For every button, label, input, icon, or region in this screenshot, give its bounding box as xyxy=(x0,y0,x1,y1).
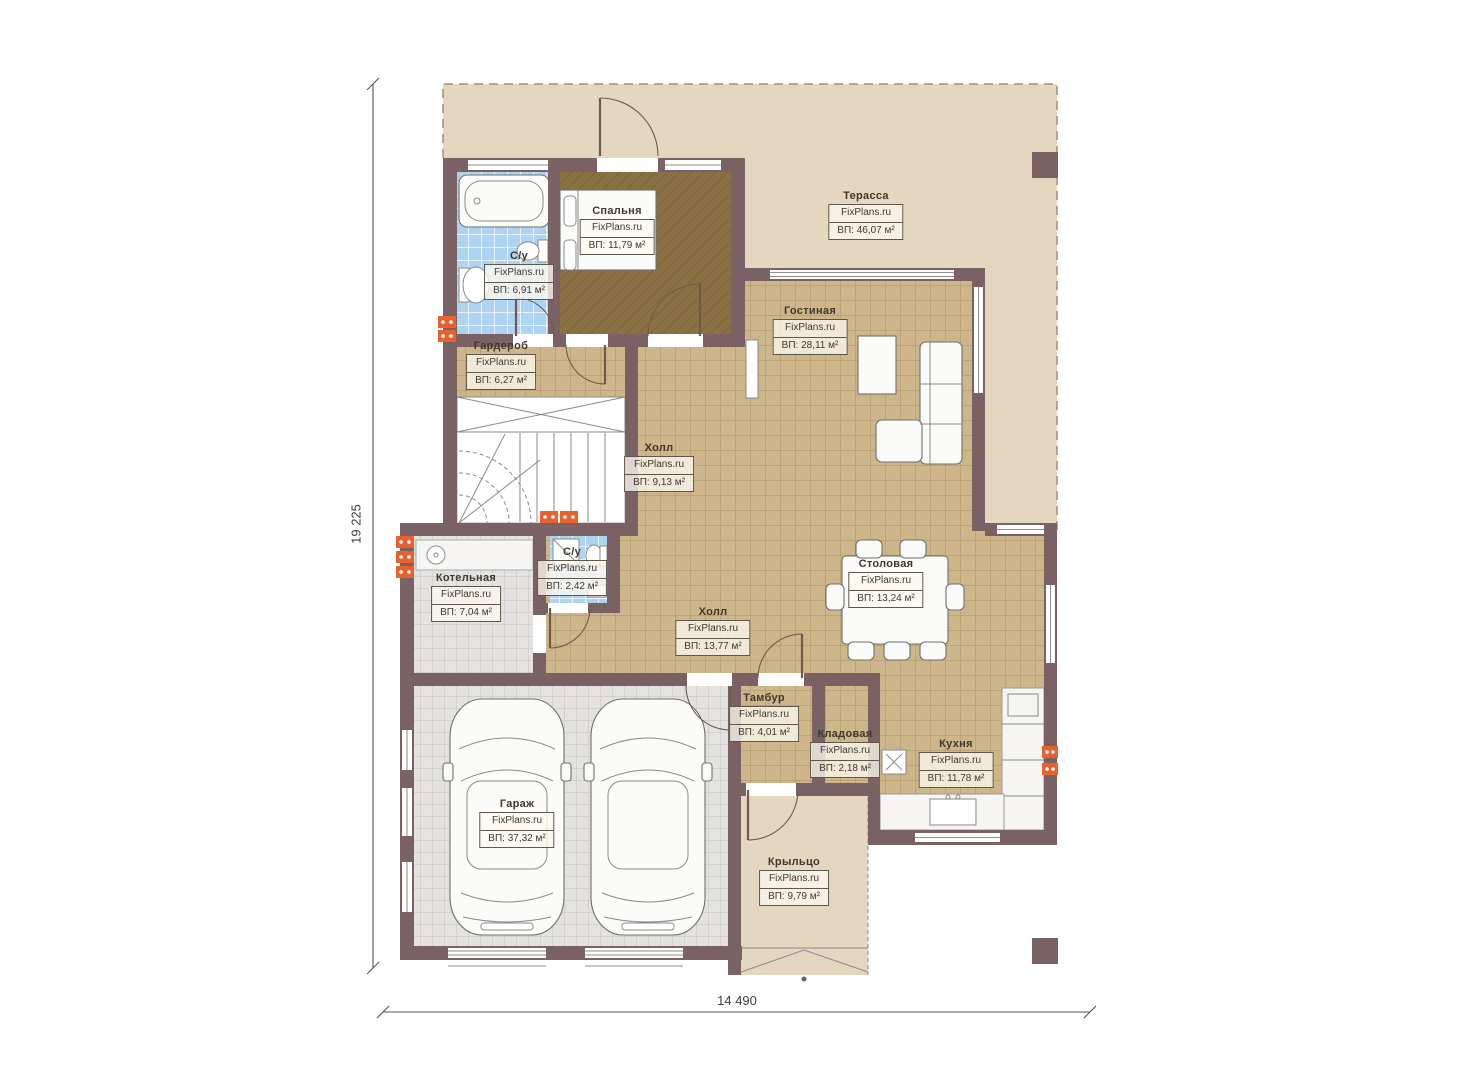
room-info-box: FixPlans.ru ВП: 2,42 м² xyxy=(537,560,607,596)
room-label-hall-2: Холл FixPlans.ru ВП: 13,77 м² xyxy=(675,606,750,656)
dimension-height-label: 19 225 xyxy=(349,504,364,544)
watermark: FixPlans.ru xyxy=(432,587,500,605)
watermark: FixPlans.ru xyxy=(480,813,553,831)
room-info-box: FixPlans.ru ВП: 9,79 м² xyxy=(759,870,829,906)
room-name: Холл xyxy=(675,606,750,618)
room-area: ВП: 13,24 м² xyxy=(849,591,922,608)
room-info-box: FixPlans.ru ВП: 2,18 м² xyxy=(810,742,880,778)
room-area: ВП: 11,78 м² xyxy=(920,771,993,788)
room-name: Гараж xyxy=(479,798,554,810)
room-name: Столовая xyxy=(848,558,923,570)
watermark: FixPlans.ru xyxy=(730,707,798,725)
room-info-box: FixPlans.ru ВП: 13,24 м² xyxy=(848,572,923,608)
stove-icon xyxy=(1042,746,1058,758)
floor-plan-page: Спальня FixPlans.ru ВП: 11,79 м² С/у Fix… xyxy=(0,0,1474,1080)
room-info-box: FixPlans.ru ВП: 9,13 м² xyxy=(624,456,694,492)
room-label-porch: Крыльцо FixPlans.ru ВП: 9,79 м² xyxy=(759,856,829,906)
radiator-icon xyxy=(396,551,414,563)
radiator-icon xyxy=(560,511,578,523)
watermark: FixPlans.ru xyxy=(625,457,693,475)
room-name: Терасса xyxy=(828,190,903,202)
room-area: ВП: 28,11 м² xyxy=(774,338,847,355)
room-info-box: FixPlans.ru ВП: 46,07 м² xyxy=(828,204,903,240)
room-name: Гостиная xyxy=(773,305,848,317)
boiler-unit xyxy=(416,540,533,570)
bathtub xyxy=(459,175,549,227)
room-info-box: FixPlans.ru ВП: 11,79 м² xyxy=(580,219,655,255)
room-area: ВП: 6,27 м² xyxy=(467,373,535,390)
room-label-pantry: Кладовая FixPlans.ru ВП: 2,18 м² xyxy=(810,728,880,778)
room-name: Тамбур xyxy=(729,692,799,704)
wardrobe-unit xyxy=(457,397,625,432)
room-name: С/у xyxy=(537,546,607,558)
room-label-hall-1: Холл FixPlans.ru ВП: 9,13 м² xyxy=(624,442,694,492)
watermark: FixPlans.ru xyxy=(920,753,993,771)
watermark: FixPlans.ru xyxy=(760,871,828,889)
room-area: ВП: 7,04 м² xyxy=(432,605,500,622)
room-area: ВП: 4,01 м² xyxy=(730,725,798,742)
room-label-terrace: Терасса FixPlans.ru ВП: 46,07 м² xyxy=(828,190,903,240)
room-name: Котельная xyxy=(431,572,501,584)
room-area: ВП: 2,42 м² xyxy=(538,579,606,596)
room-label-bedroom: Спальня FixPlans.ru ВП: 11,79 м² xyxy=(580,205,655,255)
watermark: FixPlans.ru xyxy=(849,573,922,591)
room-info-box: FixPlans.ru ВП: 28,11 м² xyxy=(773,319,848,355)
watermark: FixPlans.ru xyxy=(811,743,879,761)
room-name: Спальня xyxy=(580,205,655,217)
room-name: Холл xyxy=(624,442,694,454)
room-area: ВП: 9,79 м² xyxy=(760,889,828,906)
room-label-wardrobe: Гардероб FixPlans.ru ВП: 6,27 м² xyxy=(466,340,536,390)
room-area: ВП: 13,77 м² xyxy=(676,639,749,656)
room-info-box: FixPlans.ru ВП: 4,01 м² xyxy=(729,706,799,742)
room-label-boiler-room: Котельная FixPlans.ru ВП: 7,04 м² xyxy=(431,572,501,622)
radiator-icon xyxy=(396,536,414,548)
radiator-icon xyxy=(438,330,456,342)
room-label-bathroom-2: С/у FixPlans.ru ВП: 2,42 м² xyxy=(537,546,607,596)
radiator-icon xyxy=(540,511,558,523)
room-area: ВП: 9,13 м² xyxy=(625,475,693,492)
room-label-living-room: Гостиная FixPlans.ru ВП: 28,11 м² xyxy=(773,305,848,355)
watermark: FixPlans.ru xyxy=(538,561,606,579)
tv-console xyxy=(746,340,758,398)
room-name: Крыльцо xyxy=(759,856,829,868)
radiator-icon xyxy=(438,316,456,328)
room-info-box: FixPlans.ru ВП: 6,27 м² xyxy=(466,354,536,390)
floor-plan-drawing xyxy=(0,0,1474,1080)
room-label-garage: Гараж FixPlans.ru ВП: 37,32 м² xyxy=(479,798,554,848)
watermark: FixPlans.ru xyxy=(581,220,654,238)
watermark: FixPlans.ru xyxy=(485,265,553,283)
room-label-dining-room: Столовая FixPlans.ru ВП: 13,24 м² xyxy=(848,558,923,608)
room-area: ВП: 37,32 м² xyxy=(480,831,553,848)
dimension-width-label: 14 490 xyxy=(717,993,757,1008)
room-name: Кухня xyxy=(919,738,994,750)
watermark: FixPlans.ru xyxy=(829,205,902,223)
room-name: Кладовая xyxy=(810,728,880,740)
room-label-kitchen: Кухня FixPlans.ru ВП: 11,78 м² xyxy=(919,738,994,788)
watermark: FixPlans.ru xyxy=(774,320,847,338)
room-info-box: FixPlans.ru ВП: 37,32 м² xyxy=(479,812,554,848)
watermark: FixPlans.ru xyxy=(676,621,749,639)
room-label-bathroom-1: С/у FixPlans.ru ВП: 6,91 м² xyxy=(484,250,554,300)
room-area: ВП: 11,79 м² xyxy=(581,238,654,255)
room-area: ВП: 46,07 м² xyxy=(829,223,902,240)
room-name: Гардероб xyxy=(466,340,536,352)
room-info-box: FixPlans.ru ВП: 6,91 м² xyxy=(484,264,554,300)
room-area: ВП: 6,91 м² xyxy=(485,283,553,300)
coffee-table xyxy=(858,336,896,394)
room-info-box: FixPlans.ru ВП: 13,77 м² xyxy=(675,620,750,656)
radiator-icon xyxy=(396,566,414,578)
room-area: ВП: 2,18 м² xyxy=(811,761,879,778)
stove-icon xyxy=(1042,763,1058,775)
room-info-box: FixPlans.ru ВП: 11,78 м² xyxy=(919,752,994,788)
room-label-vestibule: Тамбур FixPlans.ru ВП: 4,01 м² xyxy=(729,692,799,742)
watermark: FixPlans.ru xyxy=(467,355,535,373)
staircase xyxy=(457,432,625,523)
room-info-box: FixPlans.ru ВП: 7,04 м² xyxy=(431,586,501,622)
room-name: С/у xyxy=(484,250,554,262)
